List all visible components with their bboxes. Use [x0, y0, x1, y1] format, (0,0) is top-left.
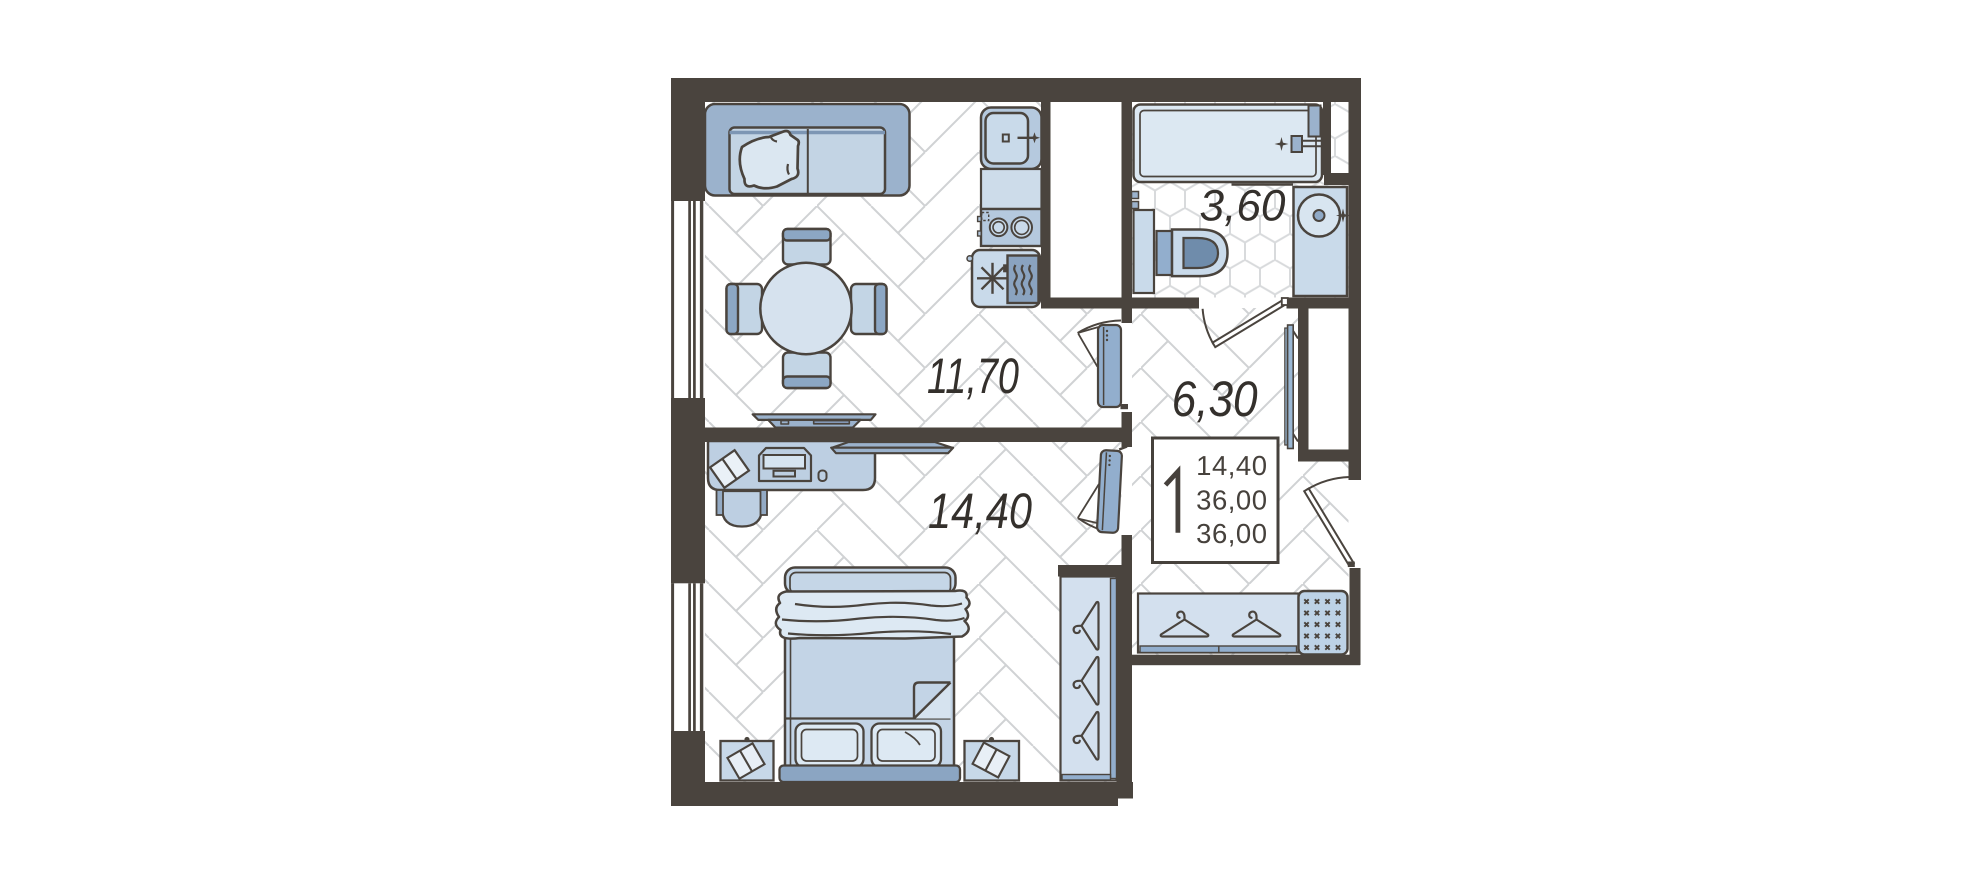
svg-text:36,00: 36,00 [1196, 485, 1267, 516]
svg-text:36,00: 36,00 [1196, 518, 1267, 549]
svg-text:3,60: 3,60 [1200, 182, 1287, 231]
svg-text:14,40: 14,40 [928, 483, 1032, 539]
svg-text:14,40: 14,40 [1196, 450, 1267, 481]
svg-text:6,30: 6,30 [1172, 371, 1258, 427]
svg-text:11,70: 11,70 [927, 348, 1019, 404]
